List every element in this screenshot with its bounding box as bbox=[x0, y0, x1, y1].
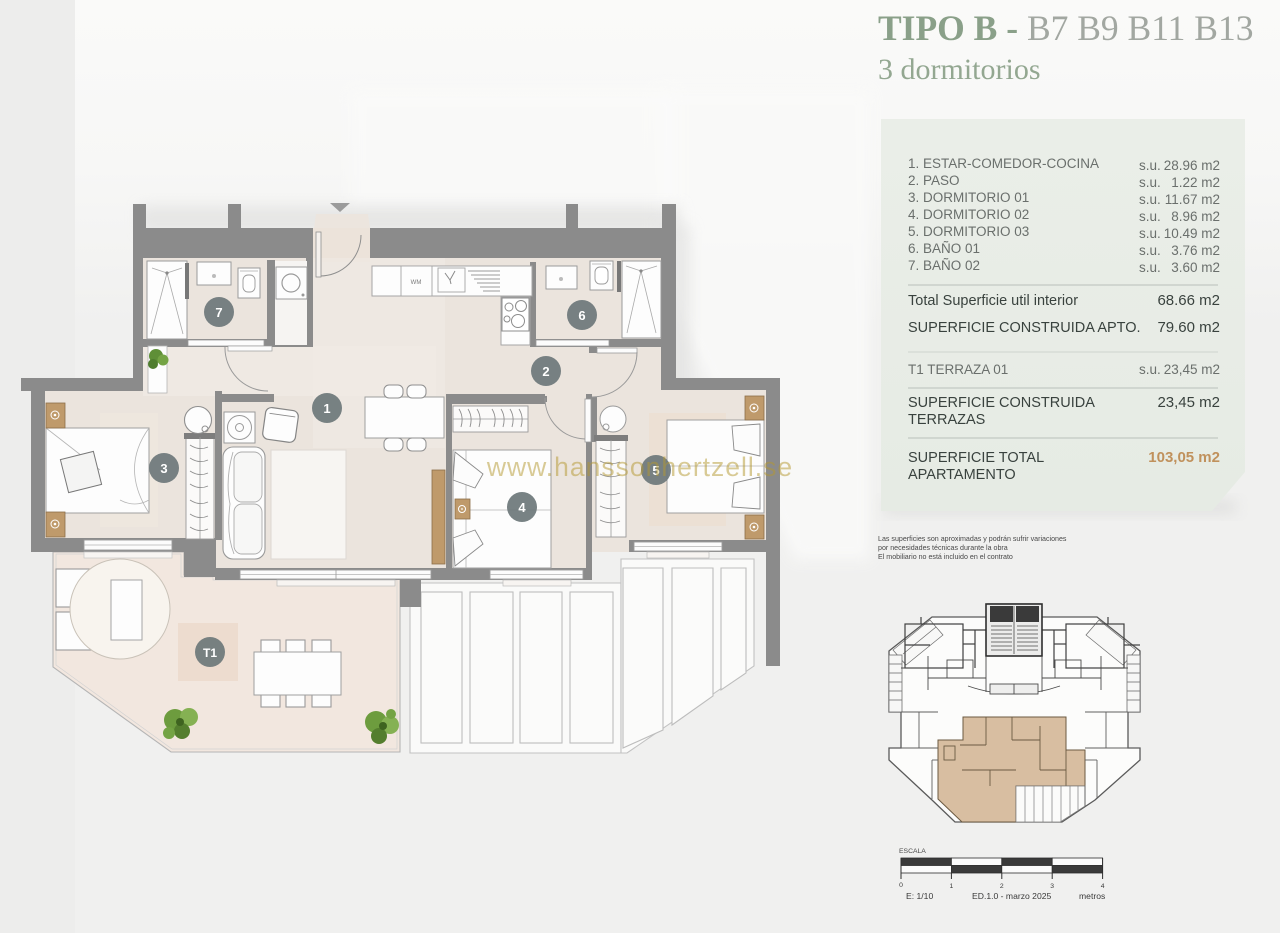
svg-text:s.u.: s.u. bbox=[1139, 362, 1161, 377]
svg-text:s.u.: s.u. bbox=[1139, 260, 1161, 275]
svg-text:s.u.: s.u. bbox=[1139, 226, 1161, 241]
svg-text:TIPO B - B7 B9 B11 B13: TIPO B - B7 B9 B11 B13 bbox=[878, 8, 1253, 48]
svg-text:Total Superficie util interior: Total Superficie util interior bbox=[908, 293, 1078, 309]
svg-text:8.96 m2: 8.96 m2 bbox=[1171, 209, 1220, 224]
svg-text:3.60 m2: 3.60 m2 bbox=[1171, 260, 1220, 275]
svg-text:s.u.: s.u. bbox=[1139, 175, 1161, 190]
svg-text:3 dormitorios: 3 dormitorios bbox=[878, 53, 1041, 86]
svg-text:3.76 m2: 3.76 m2 bbox=[1171, 243, 1220, 258]
svg-text:5. DORMITORIO 03: 5. DORMITORIO 03 bbox=[908, 224, 1029, 239]
svg-text:2: 2 bbox=[542, 364, 549, 379]
svg-text:1. ESTAR-COMEDOR-COCINA: 1. ESTAR-COMEDOR-COCINA bbox=[908, 156, 1099, 171]
svg-text:por necesidades técnicas duran: por necesidades técnicas durante la obra bbox=[878, 544, 1008, 552]
svg-text:s.u.: s.u. bbox=[1139, 209, 1161, 224]
svg-text:SUPERFICIE CONSTRUIDA APTO.: SUPERFICIE CONSTRUIDA APTO. bbox=[908, 320, 1141, 336]
svg-text:TERRAZAS: TERRAZAS bbox=[908, 412, 985, 428]
svg-text:SUPERFICIE CONSTRUIDA: SUPERFICIE CONSTRUIDA bbox=[908, 395, 1095, 411]
svg-text:3: 3 bbox=[1050, 883, 1054, 890]
svg-text:2. PASO: 2. PASO bbox=[908, 173, 960, 188]
svg-text:103,05 m2: 103,05 m2 bbox=[1148, 449, 1220, 466]
svg-text:6. BAÑO 01: 6. BAÑO 01 bbox=[908, 241, 980, 256]
svg-text:7: 7 bbox=[215, 305, 222, 320]
svg-text:T1: T1 bbox=[203, 646, 217, 660]
svg-text:68.66 m2: 68.66 m2 bbox=[1157, 292, 1220, 309]
svg-text:3: 3 bbox=[160, 461, 167, 476]
svg-text:www.hanssonhertzell.se: www.hanssonhertzell.se bbox=[486, 452, 793, 482]
svg-text:2: 2 bbox=[1000, 883, 1004, 890]
svg-text:APARTAMENTO: APARTAMENTO bbox=[908, 467, 1016, 483]
svg-text:SUPERFICIE TOTAL: SUPERFICIE TOTAL bbox=[908, 450, 1044, 466]
svg-text:WM: WM bbox=[411, 280, 422, 286]
svg-text:ED.1.0 - marzo 2025: ED.1.0 - marzo 2025 bbox=[972, 891, 1052, 901]
svg-text:10.49 m2: 10.49 m2 bbox=[1164, 226, 1220, 241]
svg-text:1: 1 bbox=[323, 401, 330, 416]
svg-text:23,45 m2: 23,45 m2 bbox=[1157, 394, 1220, 411]
svg-text:s.u.: s.u. bbox=[1139, 192, 1161, 207]
svg-text:E: 1/10: E: 1/10 bbox=[906, 891, 933, 901]
svg-text:3. DORMITORIO 01: 3. DORMITORIO 01 bbox=[908, 190, 1029, 205]
svg-text:Las superficies son aproximada: Las superficies son aproximadas y podrán… bbox=[878, 535, 1067, 543]
svg-text:s.u.: s.u. bbox=[1139, 243, 1161, 258]
svg-text:0: 0 bbox=[899, 882, 903, 889]
svg-text:79.60 m2: 79.60 m2 bbox=[1157, 319, 1220, 336]
svg-text:11.67 m2: 11.67 m2 bbox=[1165, 192, 1220, 207]
svg-text:4: 4 bbox=[518, 500, 526, 515]
svg-text:4: 4 bbox=[1101, 883, 1105, 890]
svg-text:6: 6 bbox=[578, 308, 585, 323]
svg-text:28.96 m2: 28.96 m2 bbox=[1164, 158, 1220, 173]
svg-text:El mobiliario no está incluido: El mobiliario no está incluido en el con… bbox=[878, 553, 1013, 561]
svg-text:7. BAÑO 02: 7. BAÑO 02 bbox=[908, 258, 980, 273]
svg-text:metros: metros bbox=[1079, 891, 1105, 901]
svg-text:ESCALA: ESCALA bbox=[899, 848, 926, 855]
svg-text:T1 TERRAZA 01: T1 TERRAZA 01 bbox=[908, 362, 1008, 377]
svg-text:s.u.: s.u. bbox=[1139, 158, 1161, 173]
svg-text:4. DORMITORIO 02: 4. DORMITORIO 02 bbox=[908, 207, 1029, 222]
svg-text:23,45 m2: 23,45 m2 bbox=[1164, 362, 1220, 377]
svg-text:1: 1 bbox=[950, 883, 954, 890]
svg-text:1.22 m2: 1.22 m2 bbox=[1171, 175, 1220, 190]
